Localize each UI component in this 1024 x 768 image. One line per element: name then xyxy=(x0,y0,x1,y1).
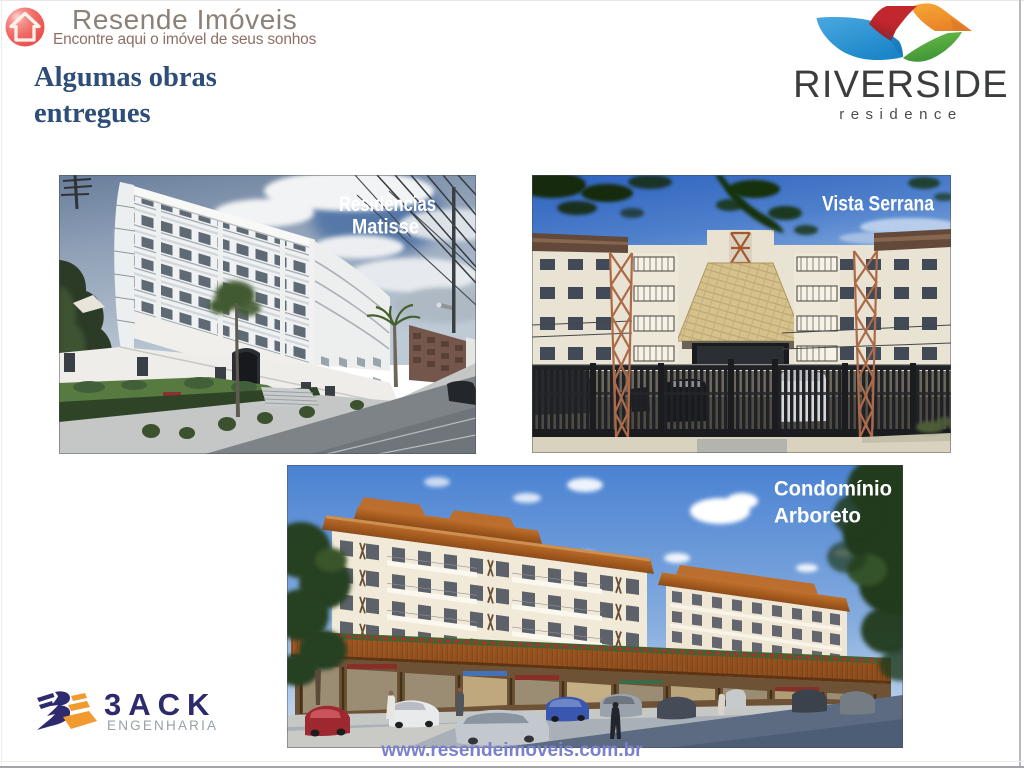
svg-text:Matisse: Matisse xyxy=(352,216,419,239)
svg-text:Vista Serrana: Vista Serrana xyxy=(822,193,934,216)
svg-text:Residências: Residências xyxy=(339,193,436,216)
svg-text:Arboreto: Arboreto xyxy=(774,505,861,528)
svg-text:Condomínio: Condomínio xyxy=(774,478,892,501)
